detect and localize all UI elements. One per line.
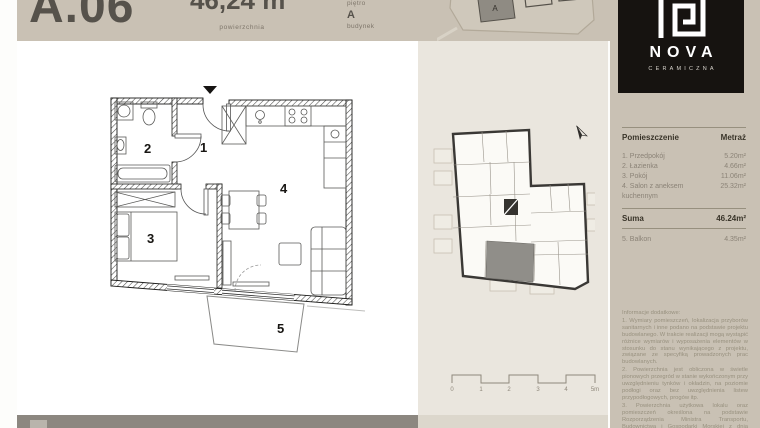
scale-bar: 0 1 2 3 4 5m (443, 366, 603, 394)
header-band: A.06 46,24 m² powierzchnia piętro A budy… (17, 0, 610, 41)
room-number-3: 3 (147, 231, 154, 246)
nova-logo-icon (649, 0, 713, 48)
logo-name: NOVA (618, 44, 744, 62)
neighbor-balcony-edge (307, 306, 365, 311)
apartment-card-page: A.06 46,24 m² powierzchnia piętro A budy… (0, 0, 760, 428)
scale-label-4: 4 (564, 387, 568, 393)
kitchen-fixtures (222, 106, 346, 188)
site-plan-minimap: A (437, 0, 610, 41)
area-label: powierzchnia (167, 24, 317, 31)
col-header-area: Metraż (721, 133, 746, 142)
row-value: 11.06m² (721, 172, 746, 182)
footer-logo-mark (30, 420, 47, 428)
north-arrow-icon (573, 124, 587, 140)
site-building-a-label: A (492, 4, 498, 13)
balcony-label: 5. Balkon (622, 236, 651, 243)
site-boundary (450, 0, 594, 34)
scale-label-2: 2 (507, 387, 511, 393)
scale-label-0: 0 (450, 387, 454, 393)
strip-bottom-edge (418, 415, 608, 428)
footer-bar (17, 415, 418, 428)
room-number-2: 2 (144, 141, 151, 156)
row-label: 1. Przedpokój (622, 152, 706, 162)
floor-label: piętro (347, 1, 374, 8)
legal-paragraph-3: 3. Powierzchnia użytkowa lokalu oraz pom… (622, 403, 748, 428)
balcony-outline (207, 296, 304, 352)
table-rows: 1. Przedpokój 5.20m² 2. Łazienka 4.66m² … (622, 149, 746, 208)
building-value: A (347, 10, 374, 21)
area-value: 46,24 m² (167, 0, 317, 16)
room-area-table: Pomieszczenie Metraż 1. Przedpokój 5.20m… (622, 127, 746, 250)
table-row: 2. Łazienka 4.66m² (622, 162, 746, 172)
row-label: 3. Pokój (622, 172, 706, 182)
table-row: 1. Przedpokój 5.20m² (622, 152, 746, 162)
entrance-marker-icon (203, 86, 217, 94)
legal-title: Informacje dodatkowe: (622, 310, 748, 317)
room-number-5: 5 (277, 321, 284, 336)
balcony-row: 5. Balkon 4.35m² (622, 229, 746, 250)
col-header-room: Pomieszczenie (622, 133, 679, 142)
legal-notes: Informacje dodatkowe: 1. Wymiary pomiesz… (622, 310, 748, 428)
table-row: 4. Salon z aneksem kuchennym 25.32m² (622, 182, 746, 202)
building-label: budynek (347, 24, 374, 31)
row-value: 5.20m² (724, 152, 746, 162)
unit-number: A.06 (29, 0, 134, 34)
nova-logo-box: NOVA CERAMICZNA (618, 0, 744, 93)
site-road (437, 28, 457, 41)
overview-panel: 0 1 2 3 4 5m (418, 41, 608, 428)
row-value: 4.66m² (724, 162, 746, 172)
scale-label-5m: 5m (591, 387, 599, 393)
bedroom-fixtures (115, 192, 177, 261)
legal-paragraph-2: 2. Powierzchnia jest obliczona w świetle… (622, 367, 748, 402)
room-number-4: 4 (280, 181, 288, 196)
bathroom-fixtures (115, 102, 170, 182)
scale-label-3: 3 (536, 387, 540, 393)
living-fixtures (175, 191, 346, 295)
sum-label: Suma (622, 214, 644, 223)
sum-row: Suma 46.24m² (622, 209, 746, 228)
balcony-value: 4.35m² (724, 236, 746, 243)
table-row: 3. Pokój 11.06m² (622, 172, 746, 182)
legal-paragraph-1: 1. Wymiary pomieszczeń, lokalizacja przy… (622, 318, 748, 366)
room-number-1: 1 (200, 140, 207, 155)
highlighted-unit (486, 241, 534, 282)
logo-subtitle: CERAMICZNA (618, 66, 744, 72)
building-floor-overview (430, 115, 595, 310)
floor-building-group: piętro A budynek (347, 1, 374, 30)
row-label: 4. Salon z aneksem kuchennym (622, 182, 706, 202)
sidebar: NOVA CERAMICZNA Pomieszczenie Metraż 1. … (610, 0, 760, 428)
floor-plan-area: 1 2 3 4 5 (17, 41, 418, 415)
row-label: 2. Łazienka (622, 162, 706, 172)
scale-label-1: 1 (479, 387, 483, 393)
floor-plan-drawing: 1 2 3 4 5 (17, 41, 418, 415)
row-value: 25.32m² (720, 182, 746, 202)
table-header-row: Pomieszczenie Metraż (622, 128, 746, 149)
sum-value: 46.24m² (716, 214, 746, 223)
